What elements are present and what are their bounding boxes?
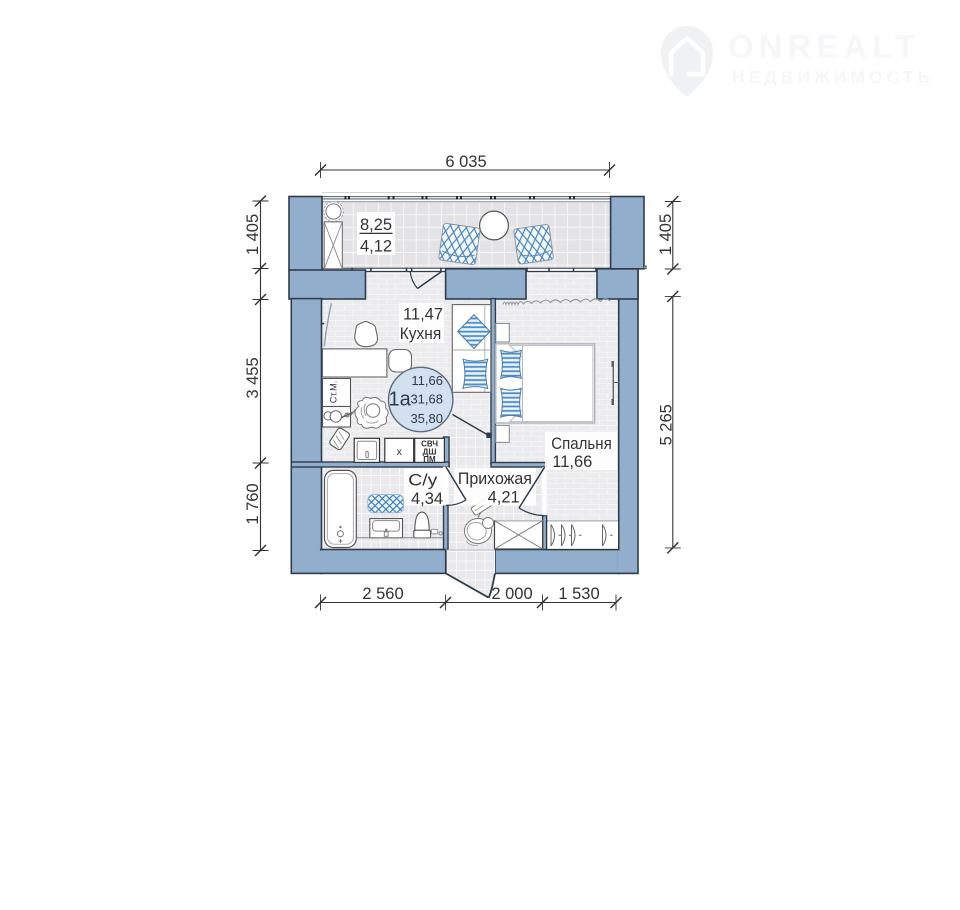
svg-text:35,80: 35,80 (410, 411, 443, 426)
svg-text:8,25: 8,25 (360, 216, 392, 234)
svg-text:4,12: 4,12 (360, 238, 392, 256)
svg-text:С/у: С/у (408, 471, 438, 489)
svg-text:Ст.М.: Ст.М. (329, 381, 339, 404)
svg-text:11,66: 11,66 (552, 453, 592, 471)
svg-text:1 405: 1 405 (657, 214, 675, 255)
svg-text:Спальня: Спальня (551, 435, 612, 453)
svg-text:4,21: 4,21 (488, 488, 520, 506)
svg-text:11,66: 11,66 (411, 373, 443, 388)
svg-text:х: х (397, 446, 403, 458)
svg-text:5 265: 5 265 (658, 404, 676, 445)
svg-text:4,34: 4,34 (411, 490, 443, 508)
svg-text:ПМ: ПМ (423, 455, 436, 464)
svg-text:2 560: 2 560 (362, 585, 403, 603)
svg-text:2 000: 2 000 (491, 585, 532, 603)
svg-text:6 035: 6 035 (445, 153, 486, 171)
svg-text:Прихожая: Прихожая (458, 470, 532, 488)
svg-text:Кухня: Кухня (400, 325, 442, 343)
svg-text:1а: 1а (389, 389, 412, 411)
svg-text:НЕДВИЖИМОСТЬ: НЕДВИЖИМОСТЬ (732, 67, 934, 87)
svg-text:3 455: 3 455 (244, 357, 262, 398)
svg-text:1 405: 1 405 (244, 214, 262, 255)
svg-text:11,47: 11,47 (403, 306, 443, 324)
svg-text:ONREALT: ONREALT (728, 28, 920, 65)
svg-text:1 760: 1 760 (244, 483, 262, 524)
svg-text:31,68: 31,68 (410, 392, 443, 407)
svg-text:1 530: 1 530 (558, 585, 599, 603)
